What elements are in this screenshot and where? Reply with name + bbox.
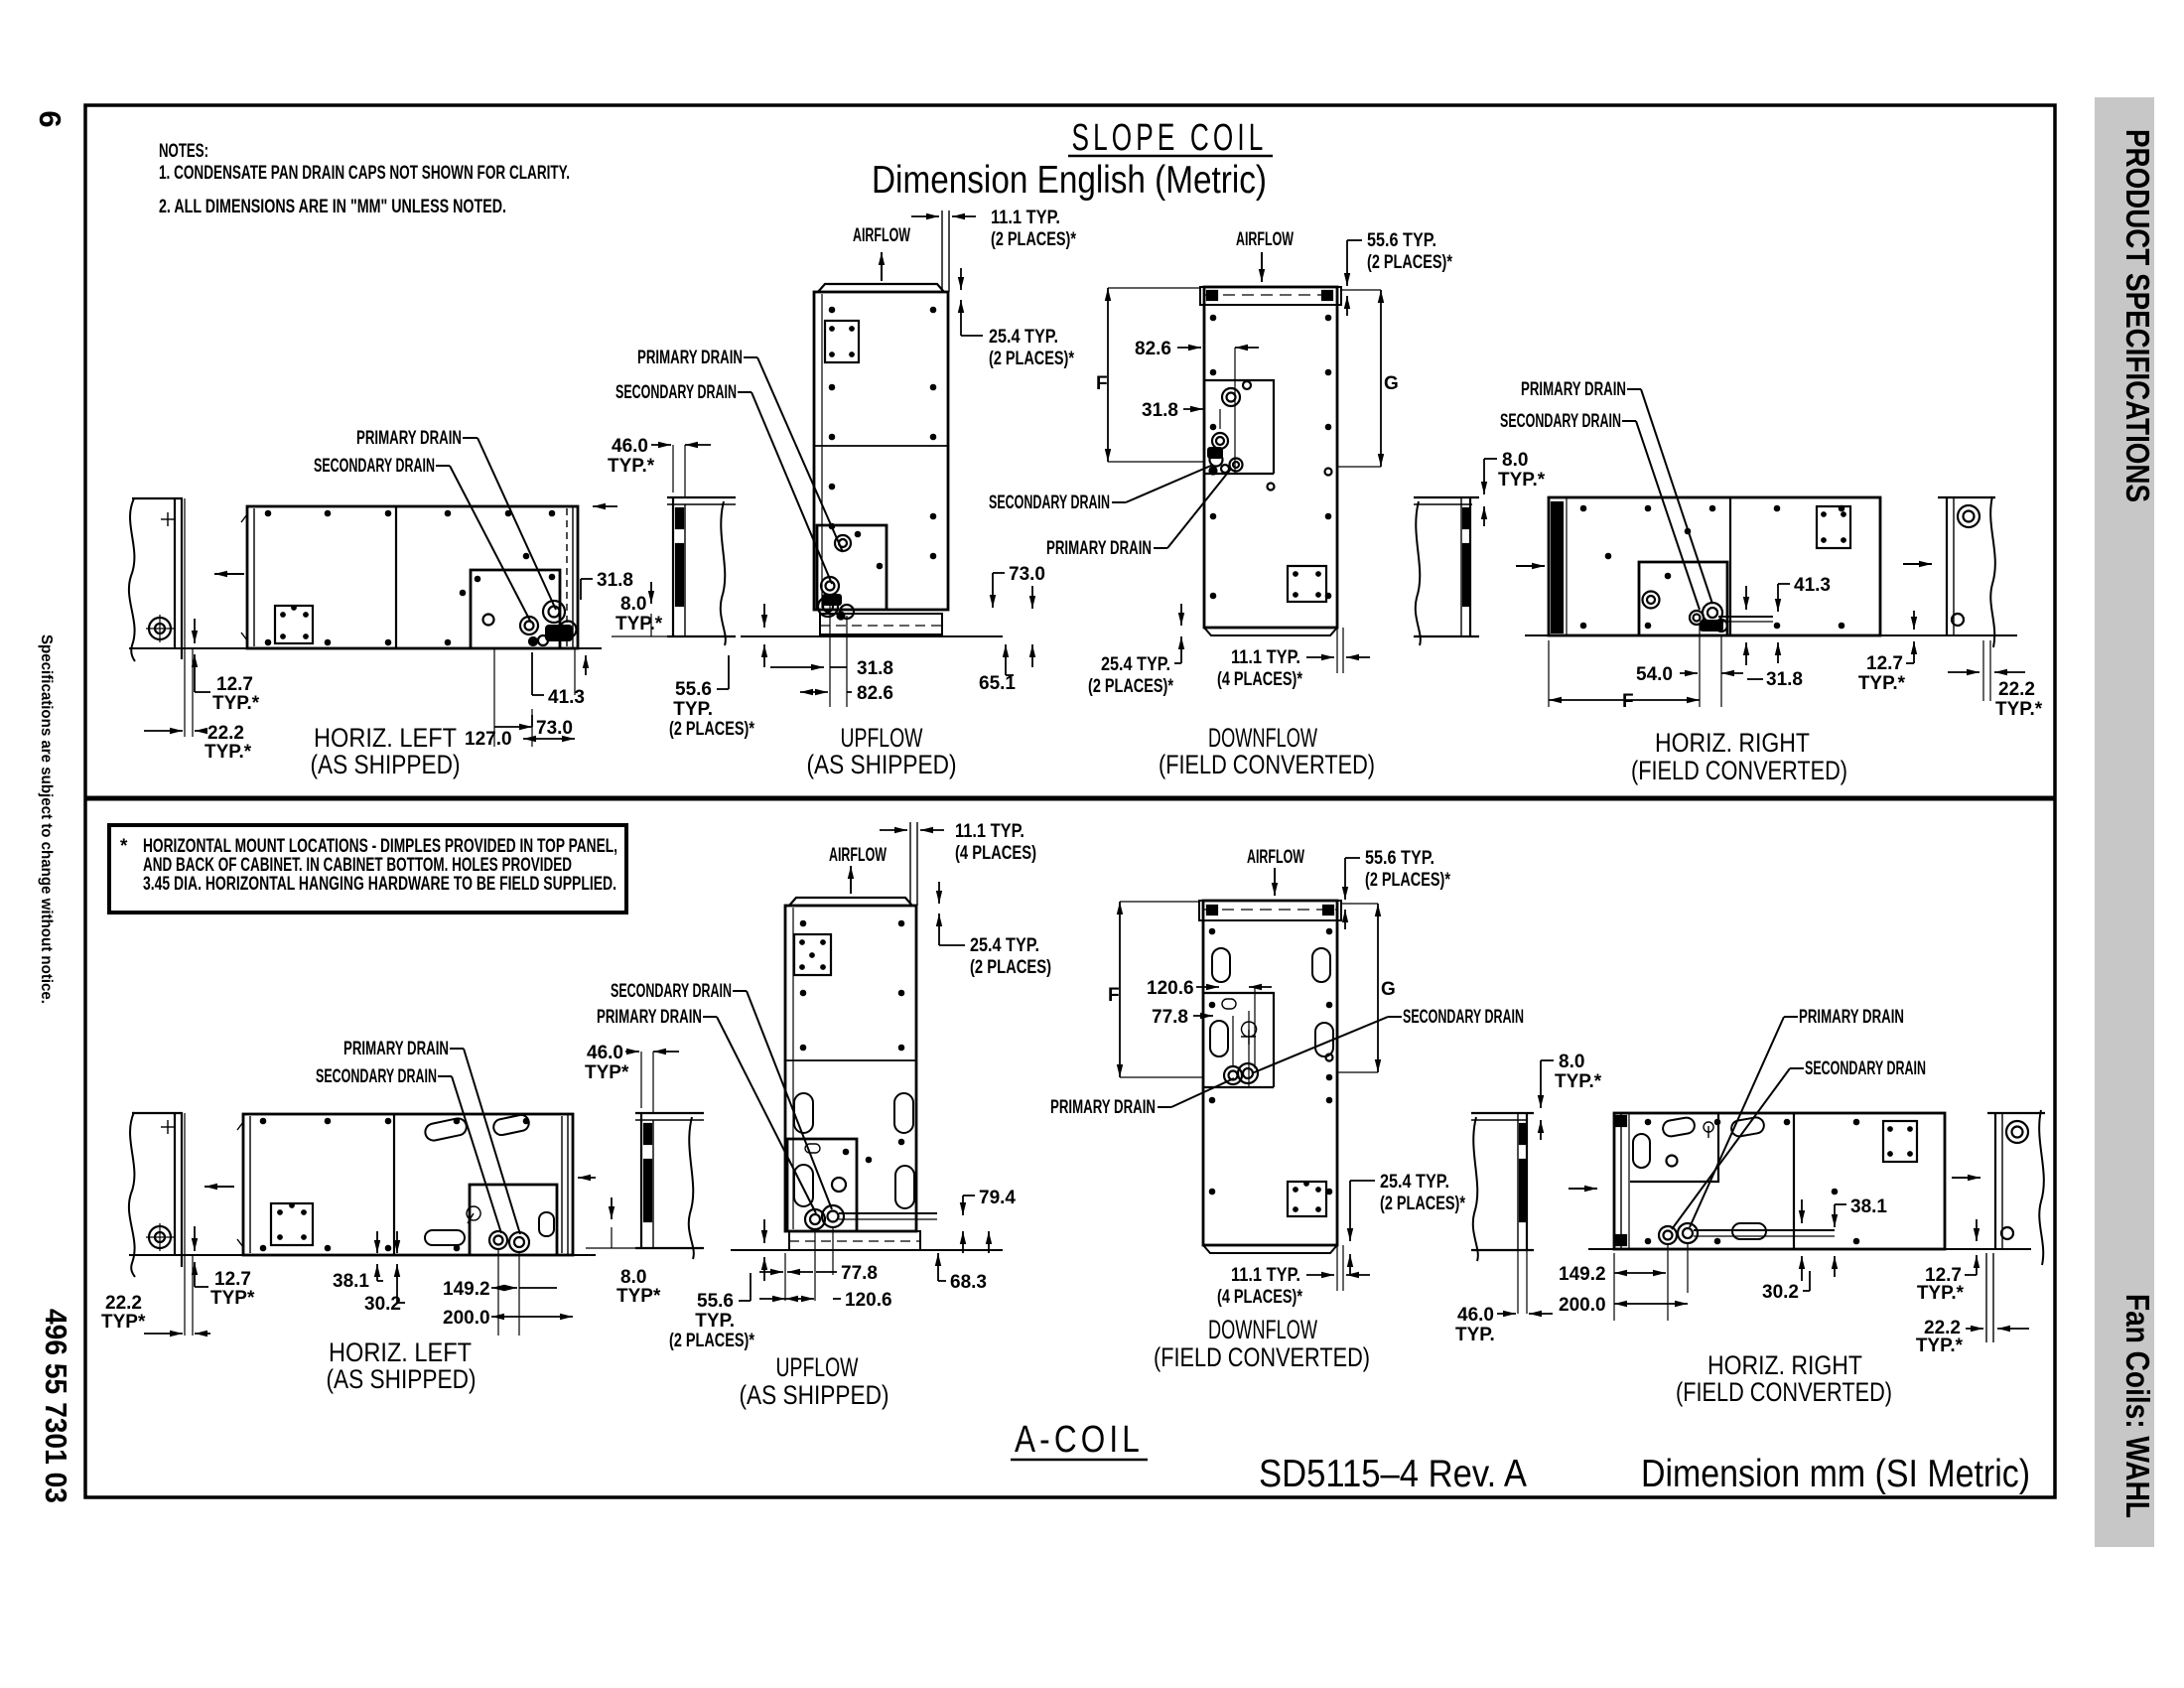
svg-text:NOTES:: NOTES: [159,141,208,162]
svg-text:UPFLOW: UPFLOW [776,1352,859,1382]
svg-text:30.2: 30.2 [1762,1282,1799,1303]
svg-text:55.6: 55.6 [697,1291,734,1312]
svg-text:(FIELD CONVERTED): (FIELD CONVERTED) [1631,756,1847,785]
svg-text:(2 PLACES)*: (2 PLACES)* [1367,252,1452,273]
svg-text:46.0: 46.0 [1457,1305,1494,1326]
svg-text:25.4 TYP.: 25.4 TYP. [1380,1172,1449,1193]
svg-text:SECONDARY DRAIN: SECONDARY DRAIN [989,492,1110,513]
svg-text:6: 6 [33,110,68,127]
svg-text:(2 PLACES): (2 PLACES) [970,957,1051,978]
svg-text:77.8: 77.8 [1152,1007,1188,1028]
svg-text:(2 PLACES)*: (2 PLACES)* [1365,870,1450,891]
svg-text:HORIZ. LEFT: HORIZ. LEFT [314,723,457,753]
svg-text:54.0: 54.0 [1636,664,1673,685]
svg-text:41.3: 41.3 [548,687,585,708]
svg-text:8.0: 8.0 [1559,1052,1584,1072]
svg-text:2. ALL DIMENSIONS ARE IN "MM": 2. ALL DIMENSIONS ARE IN "MM" UNLESS NOT… [159,197,506,217]
svg-text:127.0: 127.0 [465,729,512,750]
svg-text:TYP.*: TYP.* [608,456,655,477]
svg-text:HORIZ. RIGHT: HORIZ. RIGHT [1655,728,1810,758]
svg-text:SECONDARY DRAIN: SECONDARY DRAIN [615,382,737,403]
svg-text:200.0: 200.0 [1559,1295,1606,1316]
svg-text:8.0: 8.0 [1502,450,1528,471]
svg-text:SECONDARY DRAIN: SECONDARY DRAIN [1403,1007,1524,1028]
svg-text:31.8: 31.8 [1142,400,1178,421]
svg-text:22.2: 22.2 [105,1293,142,1314]
svg-text:SECONDARY DRAIN: SECONDARY DRAIN [316,1066,437,1087]
svg-text:F: F [1108,985,1120,1006]
svg-text:(AS SHIPPED): (AS SHIPPED) [327,1364,477,1394]
svg-text:(2 PLACES)*: (2 PLACES)* [1380,1194,1465,1214]
svg-text:G: G [1381,979,1396,1000]
svg-text:TYP*: TYP* [585,1062,629,1083]
svg-text:12.7: 12.7 [214,1269,251,1290]
svg-text:SECONDARY DRAIN: SECONDARY DRAIN [1500,411,1621,432]
svg-text:120.6: 120.6 [1147,978,1194,999]
svg-text:Dimension English (Metric): Dimension English (Metric) [872,159,1267,202]
svg-text:82.6: 82.6 [857,683,893,704]
svg-text:TYP*: TYP* [101,1312,146,1333]
svg-text:PRIMARY DRAIN: PRIMARY DRAIN [1046,538,1152,559]
svg-text:200.0: 200.0 [443,1308,490,1329]
svg-text:SLOPE COIL: SLOPE COIL [1072,117,1268,159]
svg-text:79.4: 79.4 [979,1188,1016,1208]
svg-text:11.1 TYP.: 11.1 TYP. [991,208,1060,228]
svg-text:PRIMARY DRAIN: PRIMARY DRAIN [597,1007,702,1028]
svg-text:AND BACK OF CABINET. IN CABINE: AND BACK OF CABINET. IN CABINET BOTTOM. … [143,855,572,876]
svg-text:TYP.: TYP. [673,699,713,720]
svg-text:TYP.*: TYP.* [1916,1336,1964,1356]
svg-text:55.6 TYP.: 55.6 TYP. [1365,848,1434,869]
svg-text:DOWNFLOW: DOWNFLOW [1208,1315,1317,1344]
svg-text:8.0: 8.0 [620,594,646,615]
svg-text:PRODUCT SPECIFICATIONS: PRODUCT SPECIFICATIONS [2119,129,2156,502]
svg-text:73.0: 73.0 [1009,564,1045,585]
svg-text:TYP.*: TYP.* [1555,1071,1602,1092]
svg-text:SD5115–4 Rev. A: SD5115–4 Rev. A [1259,1453,1527,1495]
svg-text:3.45 DIA. HORIZONTAL HANGING H: 3.45 DIA. HORIZONTAL HANGING HARDWARE TO… [143,874,616,895]
svg-text:77.8: 77.8 [841,1263,878,1284]
svg-text:31.8: 31.8 [857,658,893,679]
svg-text:(AS SHIPPED): (AS SHIPPED) [311,750,461,779]
svg-text:TYP.*: TYP.* [212,693,260,714]
svg-text:(AS SHIPPED): (AS SHIPPED) [740,1380,889,1410]
svg-text:PRIMARY DRAIN: PRIMARY DRAIN [1521,379,1626,400]
svg-text:25.4 TYP.: 25.4 TYP. [989,327,1058,348]
svg-text:(2 PLACES)*: (2 PLACES)* [991,229,1076,250]
svg-text:149.2: 149.2 [1559,1264,1606,1285]
svg-text:55.6: 55.6 [675,679,712,700]
svg-text:AIRFLOW: AIRFLOW [853,225,910,246]
svg-text:A-COIL: A-COIL [1015,1419,1144,1461]
svg-text:TYP.*: TYP.* [615,614,663,634]
svg-text:30.2: 30.2 [364,1294,401,1315]
svg-text:Fan Coils: WAHL: Fan Coils: WAHL [2119,1294,2156,1518]
svg-text:11.1 TYP.: 11.1 TYP. [955,821,1024,842]
svg-text:(4 PLACES): (4 PLACES) [955,843,1036,864]
svg-text:TYP.: TYP. [695,1311,735,1332]
svg-text:(2 PLACES)*: (2 PLACES)* [669,719,754,740]
svg-text:82.6: 82.6 [1135,339,1171,359]
svg-text:496 55 7301 03: 496 55 7301 03 [39,1309,73,1503]
svg-text:HORIZ. LEFT: HORIZ. LEFT [329,1337,472,1367]
svg-text:31.8: 31.8 [1766,669,1803,690]
svg-text:PRIMARY DRAIN: PRIMARY DRAIN [1799,1007,1904,1028]
svg-text:TYP.*: TYP.* [1917,1283,1965,1304]
svg-text:TYP.*: TYP.* [1858,673,1906,694]
svg-text:22.2: 22.2 [1998,679,2035,700]
svg-text:TYP.*: TYP.* [205,742,252,763]
svg-text:AIRFLOW: AIRFLOW [1247,847,1304,868]
svg-text:12.7: 12.7 [216,674,253,695]
svg-text:HORIZ. RIGHT: HORIZ. RIGHT [1707,1350,1862,1380]
svg-text:SECONDARY DRAIN: SECONDARY DRAIN [1805,1058,1926,1079]
svg-text:SECONDARY DRAIN: SECONDARY DRAIN [611,981,732,1002]
svg-text:22.2: 22.2 [207,723,244,744]
svg-text:38.1: 38.1 [1850,1196,1887,1217]
svg-text:TYP.: TYP. [1455,1325,1495,1345]
svg-text:HORIZONTAL MOUNT LOCATIONS - D: HORIZONTAL MOUNT LOCATIONS - DIMPLES PRO… [143,836,617,857]
svg-text:*: * [120,836,128,857]
svg-text:UPFLOW: UPFLOW [841,723,923,753]
svg-text:(FIELD CONVERTED): (FIELD CONVERTED) [1154,1342,1370,1372]
svg-text:(AS SHIPPED): (AS SHIPPED) [807,750,957,779]
svg-text:G: G [1384,373,1399,394]
svg-text:46.0: 46.0 [612,436,648,457]
svg-text:Dimension mm (SI Metric): Dimension mm (SI Metric) [1641,1453,2030,1495]
svg-text:25.4 TYP.: 25.4 TYP. [970,935,1039,956]
svg-text:PRIMARY DRAIN: PRIMARY DRAIN [343,1039,449,1059]
svg-text:8.0: 8.0 [620,1267,646,1288]
svg-text:TYP*: TYP* [616,1286,661,1307]
svg-text:(FIELD CONVERTED): (FIELD CONVERTED) [1159,750,1375,779]
svg-text:SECONDARY DRAIN: SECONDARY DRAIN [314,456,435,477]
svg-text:TYP.*: TYP.* [1995,699,2043,720]
svg-text:68.3: 68.3 [950,1272,987,1293]
svg-text:38.1: 38.1 [333,1271,369,1292]
svg-text:65.1: 65.1 [979,673,1016,694]
svg-text:F: F [1622,691,1634,712]
svg-text:11.1 TYP.: 11.1 TYP. [1231,1265,1300,1286]
svg-text:11.1 TYP.: 11.1 TYP. [1231,647,1300,668]
svg-text:46.0: 46.0 [587,1043,623,1063]
svg-text:(2 PLACES)*: (2 PLACES)* [669,1331,754,1351]
svg-text:25.4 TYP.: 25.4 TYP. [1101,654,1170,675]
svg-text:41.3: 41.3 [1794,575,1831,596]
svg-text:31.8: 31.8 [597,570,633,591]
svg-text:(2 PLACES)*: (2 PLACES)* [989,349,1074,369]
svg-text:PRIMARY DRAIN: PRIMARY DRAIN [356,428,462,449]
svg-text:TYP.*: TYP.* [1498,470,1546,491]
svg-text:1. CONDENSATE PAN DRAIN CAPS N: 1. CONDENSATE PAN DRAIN CAPS NOT SHOWN F… [159,163,570,184]
svg-text:PRIMARY DRAIN: PRIMARY DRAIN [637,348,743,368]
svg-text:55.6 TYP.: 55.6 TYP. [1367,230,1436,251]
svg-text:(4 PLACES)*: (4 PLACES)* [1217,1287,1302,1308]
svg-text:(2 PLACES)*: (2 PLACES)* [1088,676,1173,697]
svg-text:AIRFLOW: AIRFLOW [829,845,887,866]
svg-text:73.0: 73.0 [536,718,573,739]
svg-text:DOWNFLOW: DOWNFLOW [1208,723,1317,753]
svg-text:TYP*: TYP* [210,1288,255,1309]
svg-text:12.7: 12.7 [1866,653,1903,674]
svg-text:120.6: 120.6 [845,1290,892,1311]
svg-text:AIRFLOW: AIRFLOW [1236,229,1294,250]
svg-text:(4 PLACES)*: (4 PLACES)* [1217,669,1302,690]
svg-text:(FIELD CONVERTED): (FIELD CONVERTED) [1676,1377,1892,1407]
svg-text:F: F [1096,373,1108,394]
svg-text:Specifications are subject to: Specifications are subject to change wit… [38,634,55,1004]
svg-text:PRIMARY DRAIN: PRIMARY DRAIN [1050,1097,1156,1118]
svg-text:149.2: 149.2 [443,1279,490,1300]
